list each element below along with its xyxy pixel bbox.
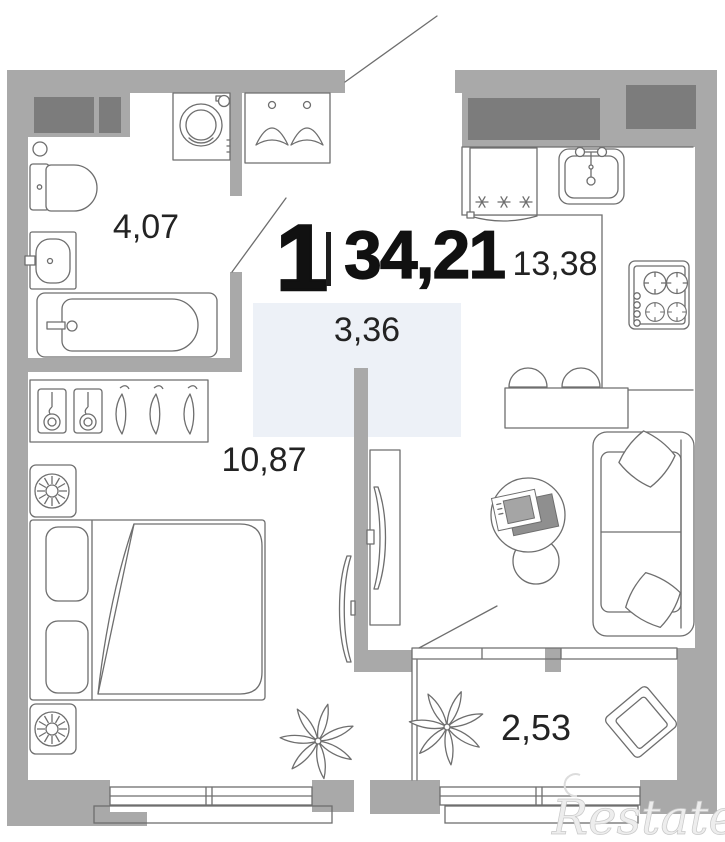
wardrobe-icon xyxy=(30,380,208,442)
title-separator xyxy=(326,232,331,286)
nightstand-icon xyxy=(30,704,76,754)
tv-stand-icon xyxy=(367,450,400,625)
bar-stool-icon xyxy=(562,368,600,387)
balcony-area-label: 2,53 xyxy=(501,707,571,748)
floor-plan-drawing: 4,07 3,36 13,38 10,87 2,53 1 34,21 Resta… xyxy=(0,0,725,842)
kitchen-sink-icon xyxy=(559,148,624,205)
double-bed-icon xyxy=(30,520,265,700)
bar-stool-icon xyxy=(509,368,547,387)
room-count-label: 1 xyxy=(276,205,328,310)
bar-counter-icon xyxy=(505,368,628,428)
plant-icon xyxy=(272,694,364,785)
toilet-icon xyxy=(30,164,97,211)
kitchen-area-label: 13,38 xyxy=(512,245,597,283)
bathroom-area-label: 4,07 xyxy=(113,208,179,246)
bathtub-icon xyxy=(37,293,217,357)
sofa-icon xyxy=(593,427,694,636)
coffee-table-icon xyxy=(491,478,565,584)
table-lamp-icon xyxy=(35,474,69,508)
bathroom-sink-icon xyxy=(25,232,76,289)
washing-machine-icon xyxy=(173,93,230,160)
fridge-icon xyxy=(467,148,537,221)
drain-icon xyxy=(33,142,47,156)
stove-icon xyxy=(629,261,689,329)
plan-title: 1 34,21 xyxy=(276,205,504,310)
total-area-label: 34,21 xyxy=(344,217,504,293)
table-lamp-icon xyxy=(35,712,69,746)
balcony-door-swing-icon xyxy=(419,606,497,648)
entrance-door-swing-icon xyxy=(345,16,437,82)
watermark-text: Restate xyxy=(551,790,725,842)
floor-plan: 4,07 3,36 13,38 10,87 2,53 1 34,21 Resta… xyxy=(0,0,725,842)
hallway-area-label: 3,36 xyxy=(334,311,400,349)
tv-icon xyxy=(340,556,356,662)
nightstand-icon xyxy=(30,465,76,517)
bedroom-area-label: 10,87 xyxy=(221,441,306,479)
plant-icon xyxy=(400,678,496,775)
armchair-icon xyxy=(604,685,679,760)
coat-rack-icon xyxy=(245,93,330,163)
